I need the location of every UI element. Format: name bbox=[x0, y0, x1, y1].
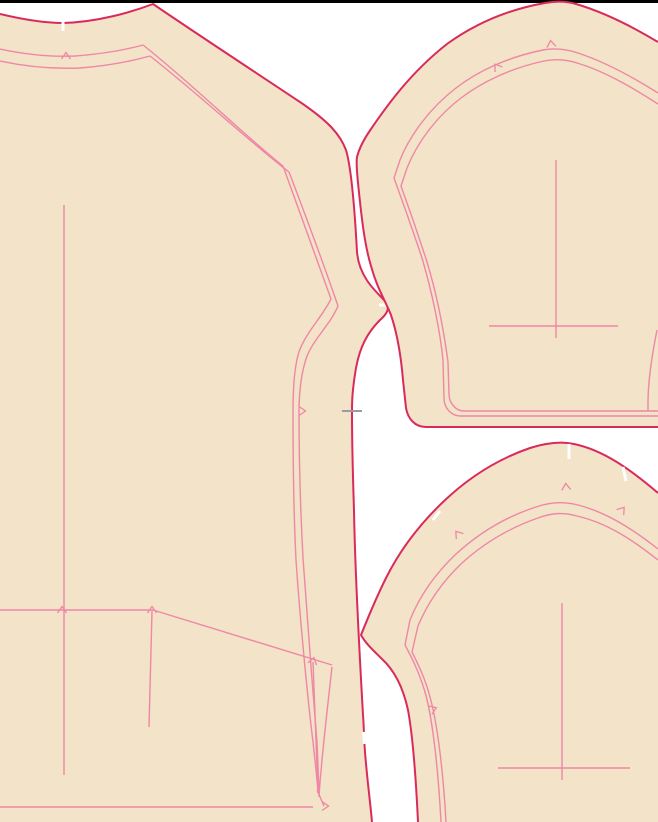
notch-white bbox=[364, 732, 365, 744]
lower-sleeve-piece-fabric bbox=[361, 443, 658, 822]
bodice-piece[interactable] bbox=[0, 4, 393, 822]
pattern-drawing bbox=[0, 0, 658, 822]
pattern-layout-canvas bbox=[0, 0, 658, 822]
lower-sleeve-piece[interactable] bbox=[361, 443, 658, 822]
upper-sleeve-piece[interactable] bbox=[357, 2, 658, 427]
